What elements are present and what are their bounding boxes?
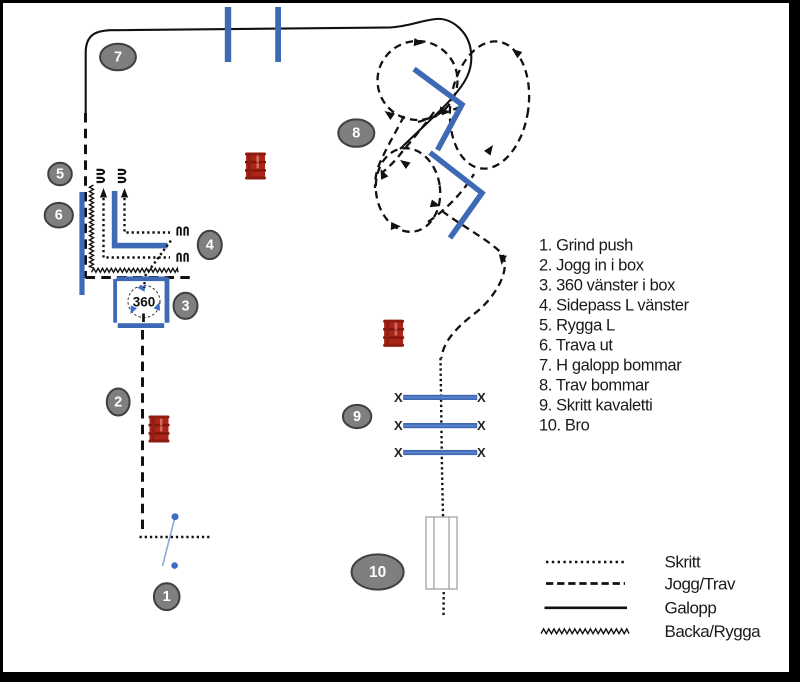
svg-text:4. Sidepass L vänster: 4. Sidepass L vänster [539, 297, 690, 315]
svg-text:6: 6 [55, 208, 63, 224]
svg-text:X: X [394, 390, 403, 405]
svg-text:1. Grind push: 1. Grind push [539, 237, 633, 255]
svg-text:Galopp: Galopp [665, 599, 717, 618]
svg-text:3. 360 vänster i box: 3. 360 vänster i box [539, 277, 676, 295]
svg-text:360: 360 [133, 295, 156, 310]
svg-text:2: 2 [114, 395, 122, 411]
svg-text:10: 10 [369, 564, 386, 581]
svg-text:9. Skritt kavaletti: 9. Skritt kavaletti [539, 397, 652, 415]
svg-text:2. Jogg in i box: 2. Jogg in i box [539, 257, 645, 275]
svg-text:X: X [394, 418, 403, 433]
svg-text:Jogg/Trav: Jogg/Trav [665, 575, 736, 594]
svg-text:3: 3 [181, 298, 189, 314]
svg-text:5. Rygga L: 5. Rygga L [539, 317, 615, 335]
svg-text:7. H galopp bommar: 7. H galopp bommar [539, 357, 682, 375]
svg-text:8: 8 [352, 126, 360, 142]
svg-text:1: 1 [163, 589, 171, 605]
svg-text:5: 5 [56, 167, 64, 183]
svg-text:7: 7 [114, 50, 122, 66]
svg-text:6. Trava ut: 6. Trava ut [539, 337, 613, 355]
svg-text:Backa/Rygga: Backa/Rygga [665, 622, 762, 641]
svg-text:9: 9 [353, 409, 361, 425]
svg-text:X: X [477, 418, 486, 433]
svg-text:Skritt: Skritt [665, 553, 702, 572]
svg-text:X: X [394, 445, 403, 460]
svg-text:X: X [477, 390, 486, 405]
svg-text:X: X [477, 445, 486, 460]
svg-text:10. Bro: 10. Bro [539, 417, 590, 435]
svg-text:8. Trav bommar: 8. Trav bommar [539, 377, 650, 395]
svg-text:4: 4 [206, 237, 214, 253]
